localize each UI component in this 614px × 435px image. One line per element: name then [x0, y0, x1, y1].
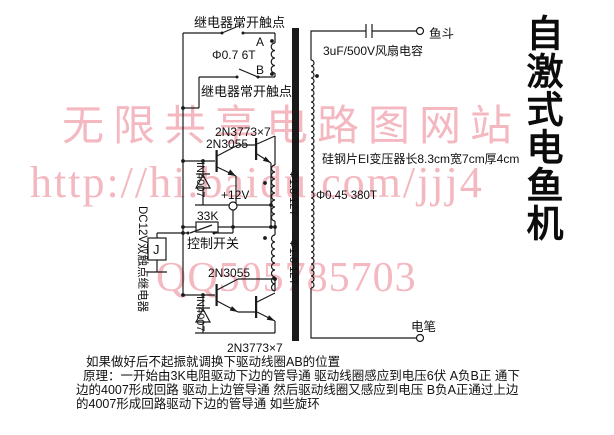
driver-transistor-top-label: 2N3055 [206, 137, 248, 151]
note-line-1: 如果做好后不起振就调换下驱动线圈AB的位置 [86, 354, 340, 369]
note-line-3: 边的4007形成回路 驱动上边管导通 然后驱动线圈又感应到电压 B负A正通过上边 [76, 382, 519, 397]
capacitor-label: 3uF/500V风扇电容 [323, 43, 423, 58]
relay-contact-mid-label: 继电器常开触点 [201, 84, 292, 99]
secondary-label: Φ0.45 380T [316, 190, 377, 202]
diode-bottom-label: IN4007 [194, 296, 206, 331]
resistor-label: 33K [197, 209, 218, 223]
page-title: 自激式电鱼机 [522, 14, 559, 242]
control-switch-label: 控制开关 [187, 236, 239, 251]
probe-terminal-label: 电笔 [411, 319, 436, 334]
note-line-2: 原理：一开始由3K电阻驱动下边的管导通 驱动线圈感应到电压6伏 A负B正 通下 [83, 368, 520, 383]
schematic-page: 无限共享电路图网站 http://hi.baidu.com/jjj4 QQ505… [0, 0, 614, 435]
relay-coil-label: J [153, 242, 160, 257]
watermark-qq: QQ505785703 [156, 255, 417, 301]
primary-top-label: Φ1.8 12T [287, 170, 299, 216]
transformer-spec-label: 硅钢片EI变压器长8.3cm宽7cm厚4cm [322, 151, 519, 166]
supply-label: +12V [221, 188, 249, 202]
power-transistors-bottom-label: 2N3773×7 [227, 341, 283, 355]
feedback-coil-label: Φ0.7 6T [212, 48, 256, 62]
watermark-layer: 无限共享电路图网站 http://hi.baidu.com/jjj4 QQ505… [30, 103, 521, 301]
diode-top-label: IN4007 [194, 162, 206, 197]
driver-transistor-bottom-label: 2N3055 [208, 266, 250, 280]
point-a-label: A [256, 35, 264, 49]
primary-bottom-label: Φ1.8 12T [287, 239, 299, 285]
note-line-4: 的4007形成回路驱动下边的管导通 如些旋环 [76, 396, 320, 411]
relay-label: DC12V双触点继电器 [136, 206, 150, 313]
watermark-site: 无限共享电路图网站 [62, 103, 521, 150]
point-b-label: B [256, 63, 264, 77]
relay-contact-top-label: 继电器常开触点 [194, 15, 285, 30]
notes-block: 如果做好后不起振就调换下驱动线圈AB的位置 原理：一开始由3K电阻驱动下边的管导… [76, 354, 520, 411]
fish-bucket-terminal-label: 鱼斗 [429, 27, 454, 41]
